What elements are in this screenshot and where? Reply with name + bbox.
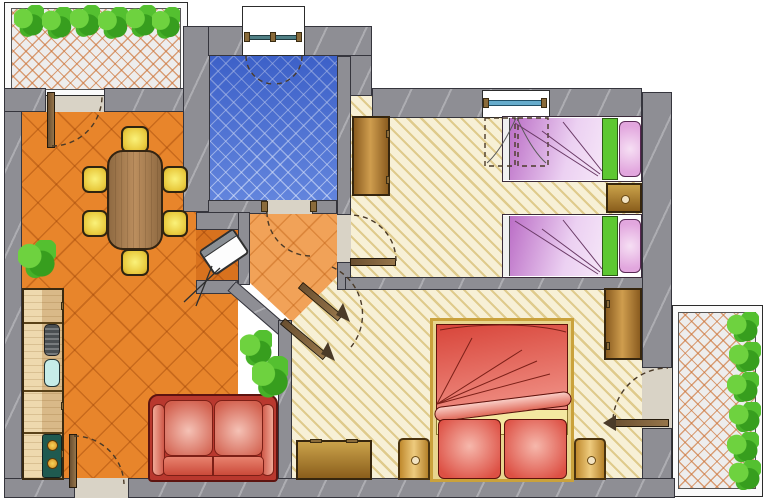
cabinet-handle	[61, 302, 64, 310]
dining-chair	[82, 166, 108, 193]
cabinet-handle	[61, 402, 64, 410]
bed-cover-purple	[510, 216, 604, 276]
nightstand-twin-bedroom	[606, 183, 642, 213]
wall-bottom-a	[4, 478, 75, 498]
wall-bath-right	[337, 56, 351, 215]
window-hinge-icon	[296, 32, 302, 42]
balcony-top-plant	[70, 5, 100, 37]
double-bed-pillow	[504, 419, 567, 479]
bed-blanket-green	[602, 216, 618, 276]
bed-pillow	[619, 219, 641, 273]
balcony-top-plant	[98, 7, 128, 39]
bed-blanket-green	[602, 118, 618, 180]
window-hinge-icon	[270, 32, 276, 42]
dining-chair	[121, 249, 149, 276]
door-hinge	[261, 201, 268, 212]
sofa-back-cushion	[214, 400, 263, 456]
dresser-double-bedroom	[296, 440, 372, 480]
dresser-handle	[310, 439, 322, 443]
knob-icon	[587, 456, 596, 465]
dining-chair	[162, 166, 188, 193]
wardrobe-hinge	[606, 342, 610, 350]
entrance-door	[69, 434, 77, 488]
balcony-top-plant	[42, 7, 72, 39]
bed-footboard	[503, 118, 510, 180]
window-hinge-icon	[483, 98, 489, 108]
nightstand-double-left	[398, 438, 430, 480]
kitchen-sink	[44, 359, 60, 387]
single-bed-1	[502, 116, 642, 182]
wall-left	[4, 88, 22, 497]
bathroom-floor	[208, 55, 337, 202]
wall-right-upper	[642, 92, 672, 368]
burner-icon	[47, 440, 58, 451]
balcony-bottom-plant	[727, 432, 759, 462]
sofa	[148, 394, 278, 482]
dish-drainer	[44, 324, 60, 356]
wardrobe-hinge	[606, 300, 610, 308]
bed-cover-purple	[510, 118, 604, 180]
nightstand-double-right	[574, 438, 606, 480]
knob-icon	[621, 195, 630, 204]
cabinet-handle	[61, 450, 64, 458]
bed-pillow	[619, 121, 641, 177]
wall-living-bedroom2	[278, 320, 292, 482]
window-hinge-icon	[244, 32, 250, 42]
living-room-plant	[18, 240, 56, 278]
twin-bedroom-window	[482, 90, 550, 118]
balcony-top-plant	[152, 7, 180, 39]
twin-bedroom-door	[350, 258, 396, 266]
stove	[42, 434, 62, 478]
dining-table	[107, 150, 163, 250]
wardrobe-hinge	[386, 176, 390, 184]
wardrobe-twin-bedroom	[352, 116, 390, 196]
twin-window-glass	[487, 100, 544, 106]
single-bed-2	[502, 214, 642, 278]
floor-plan	[0, 0, 768, 500]
door-hinge	[310, 201, 317, 212]
bed-footboard	[503, 216, 510, 276]
balcony-top-plant	[14, 5, 44, 37]
dining-chair	[162, 210, 188, 237]
bathroom-window	[242, 6, 305, 56]
twin-bedroom-door-threshold	[337, 215, 351, 262]
entrance-threshold	[75, 478, 128, 498]
dresser-handle	[346, 439, 358, 443]
balcony-bottom-door	[612, 419, 669, 427]
balcony-top-door	[47, 92, 55, 148]
knob-icon	[411, 456, 420, 465]
window-hinge-icon	[541, 98, 547, 108]
balcony-bottom-plant	[729, 460, 761, 490]
sofa-back-cushion	[164, 400, 213, 456]
wall-right-lower	[642, 428, 672, 482]
wall-top-left-a	[4, 88, 46, 112]
bathroom-door-threshold	[267, 200, 312, 214]
wardrobe-double-bedroom	[604, 288, 642, 360]
sofa-seat-divider	[212, 456, 214, 476]
counter-divider	[24, 390, 62, 392]
balcony-bottom-plant	[727, 372, 759, 402]
balcony-bottom-plant	[727, 312, 759, 342]
balcony-bottom-plant	[729, 402, 761, 432]
balcony-bottom-plant	[729, 342, 761, 372]
wall-top-left-b	[104, 88, 188, 112]
wardrobe-hinge	[386, 130, 390, 138]
double-bed-pillow	[438, 419, 501, 479]
kitchen-counter	[22, 288, 64, 480]
burner-icon	[47, 458, 58, 469]
dining-chair	[82, 210, 108, 237]
hall-plant	[252, 356, 288, 398]
double-bed	[430, 318, 574, 482]
dining-chair	[121, 126, 149, 153]
